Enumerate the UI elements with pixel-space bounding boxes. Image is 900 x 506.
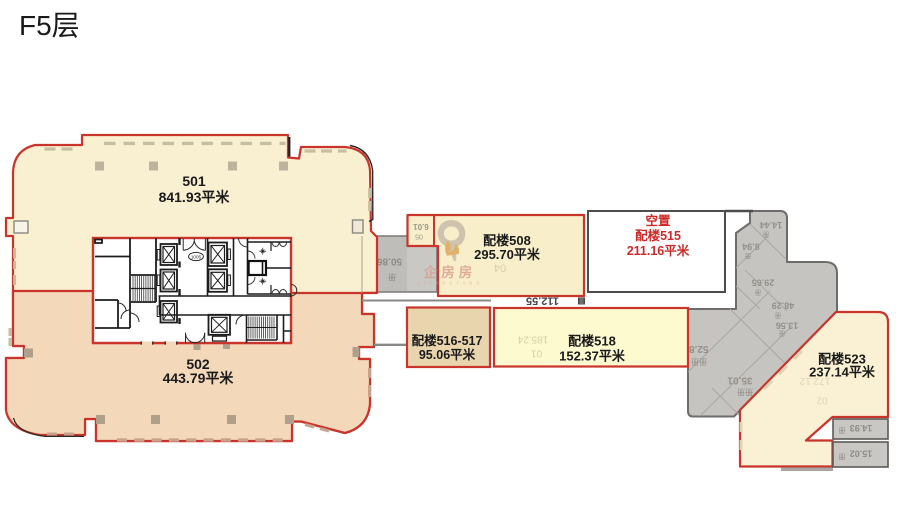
- svg-text:841.93平米: 841.93平米: [159, 189, 231, 205]
- svg-text:29.65: 29.65: [752, 278, 775, 288]
- svg-text:册册: 册册: [691, 357, 707, 366]
- svg-text:14.93: 14.93: [850, 423, 873, 433]
- svg-text:112.55: 112.55: [526, 295, 559, 307]
- svg-text:册: 册: [744, 252, 751, 260]
- svg-text:211.16平米: 211.16平米: [627, 243, 690, 258]
- svg-text:295.70平米: 295.70平米: [474, 247, 541, 262]
- svg-text:48.29: 48.29: [772, 301, 795, 311]
- svg-text:152.37平米: 152.37平米: [559, 349, 626, 364]
- svg-text:01: 01: [531, 348, 543, 359]
- svg-text:95.06平米: 95.06平米: [419, 347, 476, 362]
- svg-text:13.56: 13.56: [776, 321, 799, 331]
- svg-text:50.86: 50.86: [377, 256, 402, 267]
- svg-text:05: 05: [415, 233, 423, 240]
- svg-text:F5层: F5层: [19, 10, 80, 41]
- svg-text:14.44: 14.44: [760, 220, 783, 230]
- svg-text:册册: 册册: [737, 388, 753, 397]
- svg-text:册: 册: [388, 273, 396, 282]
- svg-text:172.12: 172.12: [799, 375, 830, 386]
- svg-text:15.02: 15.02: [850, 449, 873, 459]
- svg-text:配楼508: 配楼508: [483, 233, 531, 248]
- svg-text:册: 册: [774, 312, 781, 320]
- svg-text:册: 册: [839, 426, 846, 434]
- svg-text:02: 02: [816, 395, 828, 406]
- svg-text:443.79平米: 443.79平米: [163, 370, 235, 386]
- svg-text:企房房: 企房房: [423, 264, 477, 280]
- svg-text:04: 04: [494, 262, 506, 274]
- svg-text:185.24: 185.24: [517, 334, 548, 345]
- svg-text:空置: 空置: [645, 213, 671, 228]
- svg-text:501: 501: [182, 173, 206, 189]
- svg-text:册: 册: [762, 231, 769, 239]
- svg-text:35.01: 35.01: [727, 375, 752, 386]
- svg-text:Q I F A N G F A N G: Q I F A N G F A N G: [417, 281, 481, 286]
- svg-text:8.94: 8.94: [742, 242, 760, 252]
- svg-text:1005: 1005: [191, 254, 202, 259]
- svg-text:册: 册: [754, 289, 761, 297]
- svg-text:6.01: 6.01: [413, 222, 429, 231]
- svg-text:配楼515: 配楼515: [635, 228, 681, 243]
- svg-text:配楼516-517: 配楼516-517: [412, 333, 483, 348]
- svg-text:册: 册: [839, 453, 846, 461]
- svg-text:配楼518: 配楼518: [568, 334, 616, 349]
